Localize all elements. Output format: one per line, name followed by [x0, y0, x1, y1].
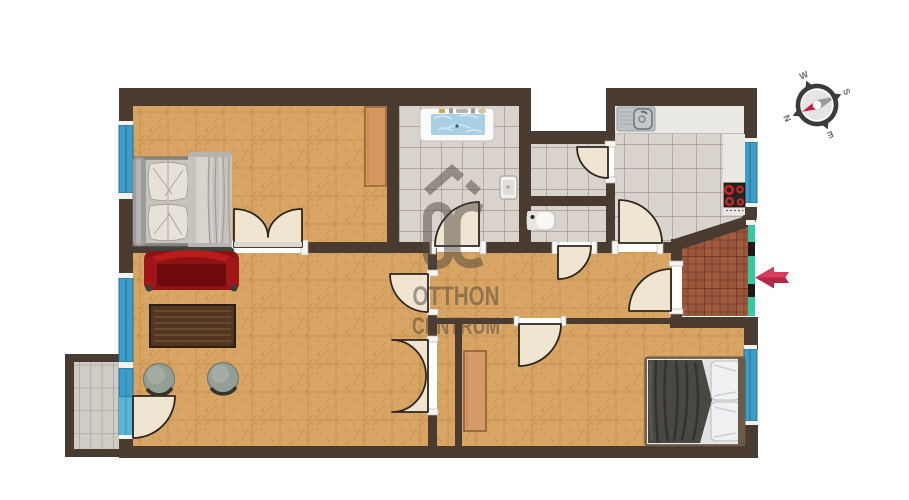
svg-text:OTTHON: OTTHON [413, 281, 500, 311]
svg-text:CENTRUM: CENTRUM [412, 313, 500, 340]
